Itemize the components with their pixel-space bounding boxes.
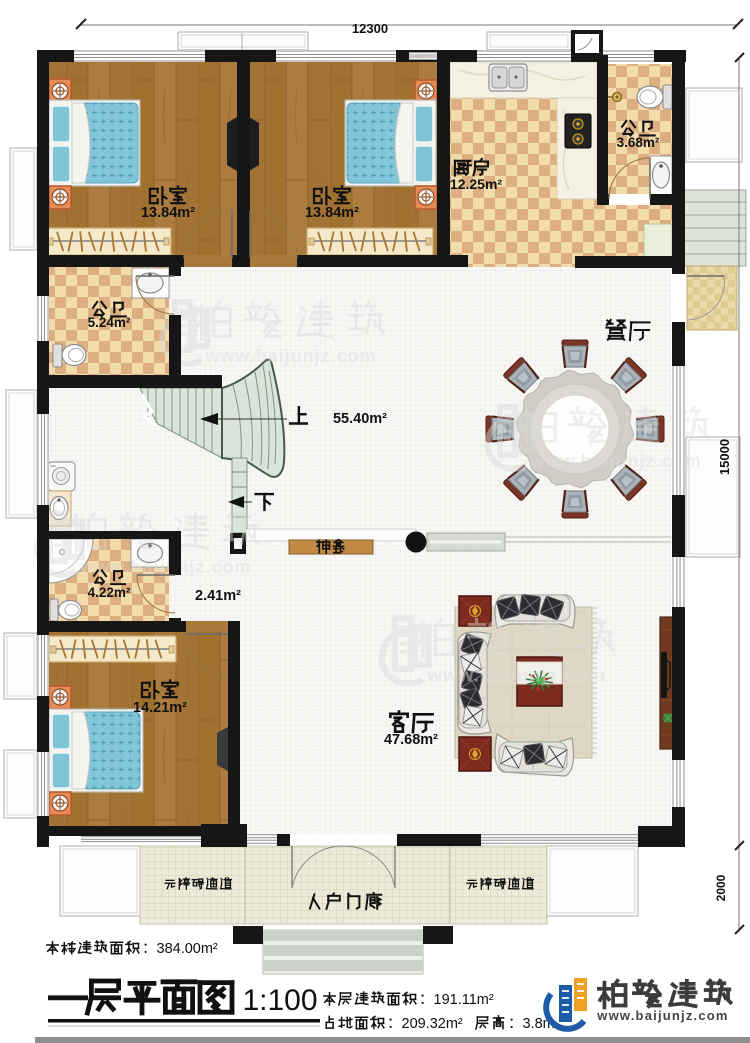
svg-text:1:100: 1:100 xyxy=(242,984,317,1017)
svg-text:3.68m²: 3.68m² xyxy=(617,135,660,150)
svg-text:4.22m²: 4.22m² xyxy=(88,585,131,600)
svg-text:12.25m²: 12.25m² xyxy=(450,176,502,192)
svg-text:www.baijunjz.com: www.baijunjz.com xyxy=(596,1008,728,1023)
svg-text:12300: 12300 xyxy=(352,21,388,36)
svg-text:47.68m²: 47.68m² xyxy=(384,732,438,748)
svg-text:：209.32m²: ：209.32m² xyxy=(387,1016,463,1032)
svg-text:13.84m²: 13.84m² xyxy=(305,205,359,221)
svg-text:14.21m²: 14.21m² xyxy=(133,700,187,716)
svg-text:5.24m²: 5.24m² xyxy=(88,315,131,330)
svg-text:：191.11m²: ：191.11m² xyxy=(419,992,494,1008)
svg-text:15000: 15000 xyxy=(717,439,732,475)
svg-text:2.41m²: 2.41m² xyxy=(195,588,241,604)
svg-text:2000: 2000 xyxy=(714,874,728,901)
svg-text:13.84m²: 13.84m² xyxy=(141,205,195,221)
svg-text:www.baijunjz.com: www.baijunjz.com xyxy=(204,346,376,366)
svg-text:：384.00m²: ：384.00m² xyxy=(142,941,218,957)
svg-text:www.baijunjz.com: www.baijunjz.com xyxy=(426,666,606,687)
svg-text:55.40m²: 55.40m² xyxy=(333,411,387,427)
